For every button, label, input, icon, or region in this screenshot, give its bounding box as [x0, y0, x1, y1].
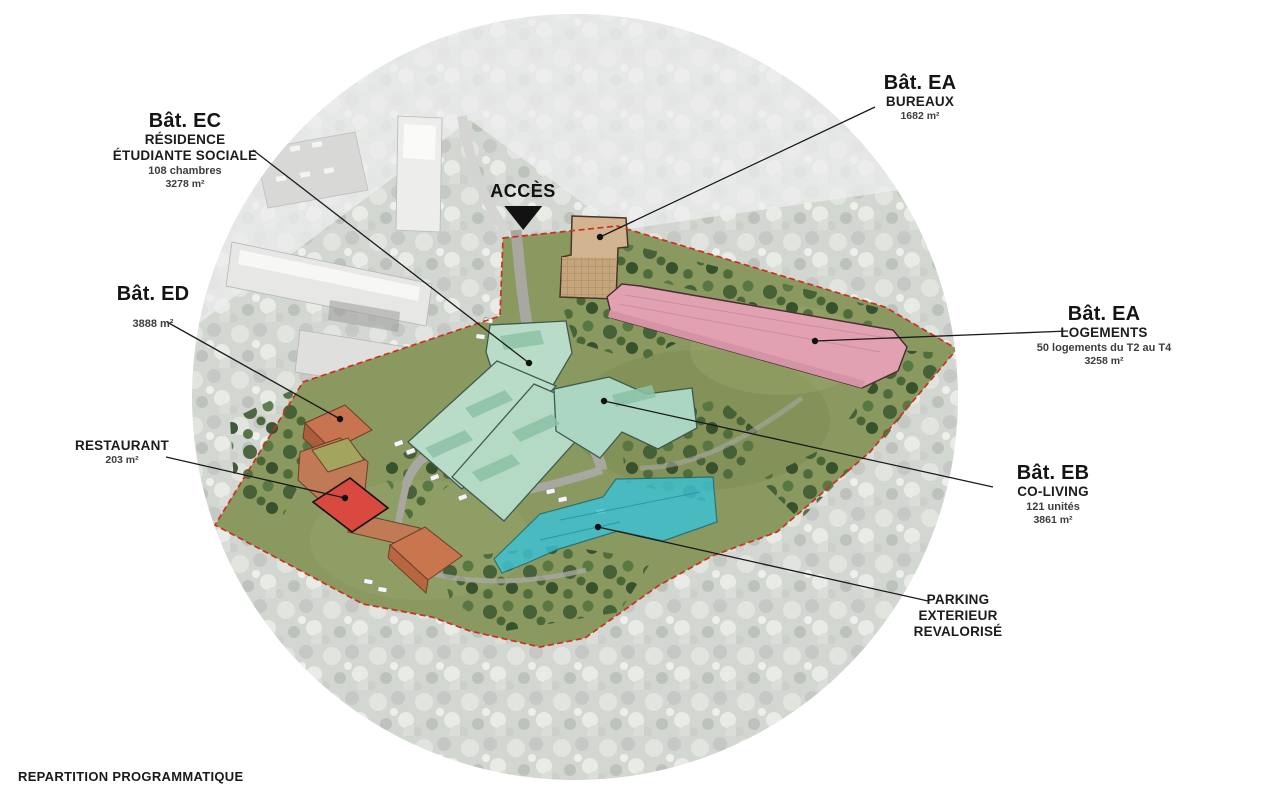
building-capacity: 121 unités: [1017, 500, 1090, 514]
building-name: RESTAURANT: [75, 438, 169, 454]
annotation-eb-coliving: Bât. EB CO-LIVING 121 unités 3861 m²: [1017, 462, 1090, 527]
building-program: RÉSIDENCE: [113, 132, 257, 148]
building-area: 203 m²: [75, 454, 169, 467]
building-capacity: 108 chambres: [113, 164, 257, 178]
building-name: Bât. EC: [113, 110, 257, 132]
aerial-photo-circle: [180, 10, 970, 790]
building-name: Bât. EA: [884, 72, 957, 94]
annotation-restaurant: RESTAURANT 203 m²: [75, 438, 169, 467]
building-area: 3258 m²: [1037, 355, 1171, 368]
site-plan-page: Bât. EA BUREAUX 1682 m² Bât. EC RÉSIDENC…: [0, 0, 1280, 807]
parking-label: EXTERIEUR: [914, 608, 1003, 624]
building-program: LOGEMENTS: [1037, 325, 1171, 341]
building-name: Bât. ED: [117, 283, 190, 305]
building-area: 1682 m²: [884, 110, 957, 123]
annotation-ec-residence: Bât. EC RÉSIDENCE ÉTUDIANTE SOCIALE 108 …: [113, 110, 257, 191]
building-area: 3278 m²: [113, 178, 257, 191]
access-arrow-icon: [504, 206, 542, 230]
building-name: Bât. EA: [1037, 303, 1171, 325]
access-label: ACCÈS: [490, 181, 556, 202]
annotation-ea-bureaux: Bât. EA BUREAUX 1682 m²: [884, 72, 957, 123]
parking-label: PARKING: [914, 592, 1003, 608]
annotation-ea-logements: Bât. EA LOGEMENTS 50 logements du T2 au …: [1037, 303, 1171, 368]
annotation-ed: Bât. ED 3888 m²: [117, 283, 190, 331]
page-title: REPARTITION PROGRAMMATIQUE: [18, 769, 243, 784]
building-program: CO-LIVING: [1017, 484, 1090, 500]
building-area: 3861 m²: [1017, 514, 1090, 527]
building-program: BUREAUX: [884, 94, 957, 110]
building-program: ÉTUDIANTE SOCIALE: [113, 148, 257, 164]
building-capacity: 50 logements du T2 au T4: [1037, 341, 1171, 355]
annotation-parking: PARKING EXTERIEUR REVALORISÉ: [914, 592, 1003, 640]
building-area: 3888 m²: [117, 317, 190, 331]
building-name: Bât. EB: [1017, 462, 1090, 484]
parking-label: REVALORISÉ: [914, 624, 1003, 640]
annotation-acces: ACCÈS: [490, 181, 556, 230]
